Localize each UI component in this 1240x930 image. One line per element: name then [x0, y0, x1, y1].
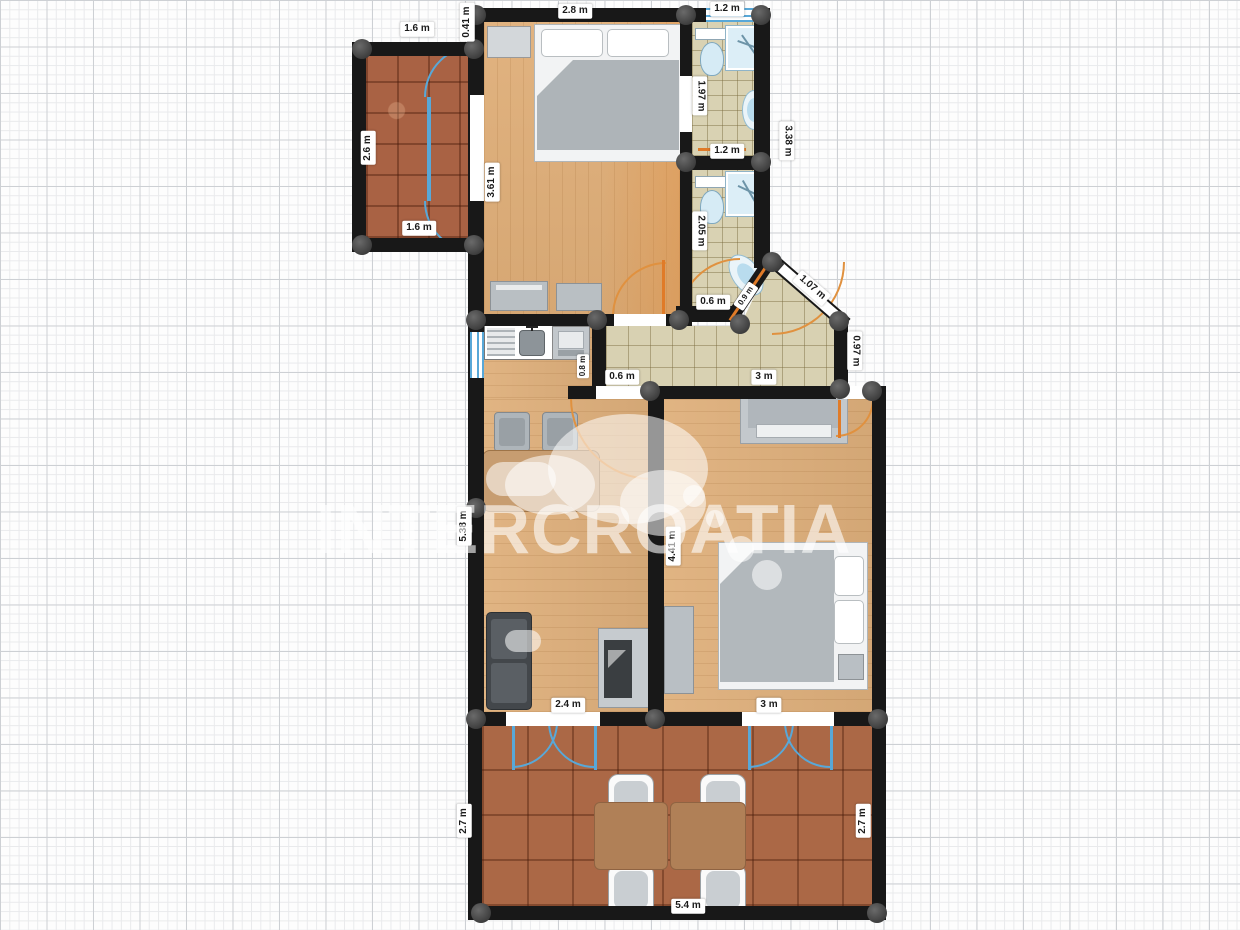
nightstand — [838, 654, 864, 680]
chair-seat — [547, 418, 573, 446]
corner-dot — [830, 379, 850, 399]
wardrobe-tall — [664, 606, 694, 694]
wall — [648, 386, 664, 716]
wall — [592, 326, 606, 388]
chair-cushion — [614, 871, 648, 909]
corner-dot — [464, 39, 484, 59]
corner-dot — [669, 310, 689, 330]
dimension-label: 2.05 m — [693, 211, 708, 250]
terrace-table — [594, 802, 668, 870]
dimension-label: 0.6 m — [696, 295, 730, 310]
corner-dot — [464, 235, 484, 255]
dimension-label: 0.8 m — [577, 354, 589, 378]
dimension-label: 1.6 m — [402, 221, 436, 236]
chair-seat — [499, 418, 525, 446]
window-mullion — [477, 332, 479, 378]
balcony-door-opening — [470, 95, 484, 201]
corner-dot — [676, 5, 696, 25]
door-leaf-blue — [512, 726, 515, 770]
corner-dot — [471, 903, 491, 923]
pillow — [834, 600, 864, 644]
toilet-bowl — [700, 42, 724, 76]
stove-top — [558, 331, 584, 349]
drainboard — [487, 328, 515, 356]
corner-dot — [676, 152, 696, 172]
floor-plan-canvas: 1.6 m 2.6 m 1.6 m 0.41 m 2.8 m 1.2 m 3.6… — [0, 0, 1240, 930]
ensuite-door-opening — [680, 76, 692, 132]
bedroom1-door-opening — [614, 314, 666, 326]
door-leaf-blue — [748, 726, 751, 770]
wall — [754, 8, 770, 268]
door-leaf-blue — [427, 97, 431, 201]
dresser-handle — [496, 285, 542, 290]
terrace-door-opening — [506, 712, 600, 726]
terrace-table — [670, 802, 746, 870]
dimension-label: 1.2 m — [710, 2, 744, 17]
window — [470, 332, 484, 378]
dimension-label: 5.4 m — [671, 899, 705, 914]
corner-dot — [645, 709, 665, 729]
corner-dot — [868, 709, 888, 729]
dimension-label: 1.6 m — [400, 22, 434, 37]
dimension-label: 0.97 m — [848, 331, 863, 370]
wall — [568, 386, 596, 399]
dimension-label: 3 m — [756, 698, 781, 713]
door-leaf — [662, 260, 665, 314]
dimension-label: 5.38 m — [457, 506, 472, 545]
corner-dot — [751, 5, 771, 25]
terrace-door-opening — [742, 712, 834, 726]
dimension-label: 2.6 m — [361, 131, 376, 165]
dimension-label: 2.4 m — [551, 698, 585, 713]
dimension-label: 2.8 m — [558, 4, 592, 19]
corner-dot — [762, 252, 782, 272]
dimension-label: 4.41 m — [666, 526, 681, 565]
tv-screen-glare — [608, 650, 626, 668]
kitchen-sink — [519, 330, 545, 356]
pillow — [541, 29, 603, 57]
dimension-label: 3.61 m — [485, 162, 500, 201]
wall — [872, 386, 886, 726]
corner-dot — [862, 381, 882, 401]
corner-dot — [352, 39, 372, 59]
nightstand — [556, 283, 602, 311]
door-leaf-blue — [594, 726, 597, 770]
corner-dot — [829, 311, 849, 331]
corner-dot — [730, 314, 750, 334]
sheet-fold — [720, 550, 754, 584]
corner-dot — [751, 152, 771, 172]
toilet-tank — [695, 28, 729, 40]
chair-cushion — [706, 871, 740, 909]
wall — [872, 726, 886, 920]
sheet-fold — [537, 60, 573, 96]
corner-dot — [867, 903, 887, 923]
dimension-label: 0.6 m — [605, 370, 639, 385]
door-leaf-blue — [830, 726, 833, 770]
dimension-label: 2.7 m — [457, 804, 472, 838]
sofa-cushion — [491, 619, 527, 659]
corner-dot — [640, 381, 660, 401]
toilet-tank — [695, 176, 729, 188]
dimension-label: 0.41 m — [460, 2, 475, 41]
dimension-label: 3 m — [751, 370, 776, 385]
corner-dot — [352, 235, 372, 255]
pillow — [834, 556, 864, 596]
corner-dot — [466, 709, 486, 729]
corner-dot — [587, 310, 607, 330]
dimension-label: 2.7 m — [856, 804, 871, 838]
wall — [648, 386, 836, 399]
pillow — [607, 29, 669, 57]
door-leaf — [838, 400, 841, 438]
dimension-label: 1.2 m — [710, 144, 744, 159]
dimension-label: 1.97 m — [693, 76, 708, 115]
dining-table — [482, 450, 600, 512]
dimension-label: 3.38 m — [780, 121, 795, 160]
corner-dot — [466, 310, 486, 330]
